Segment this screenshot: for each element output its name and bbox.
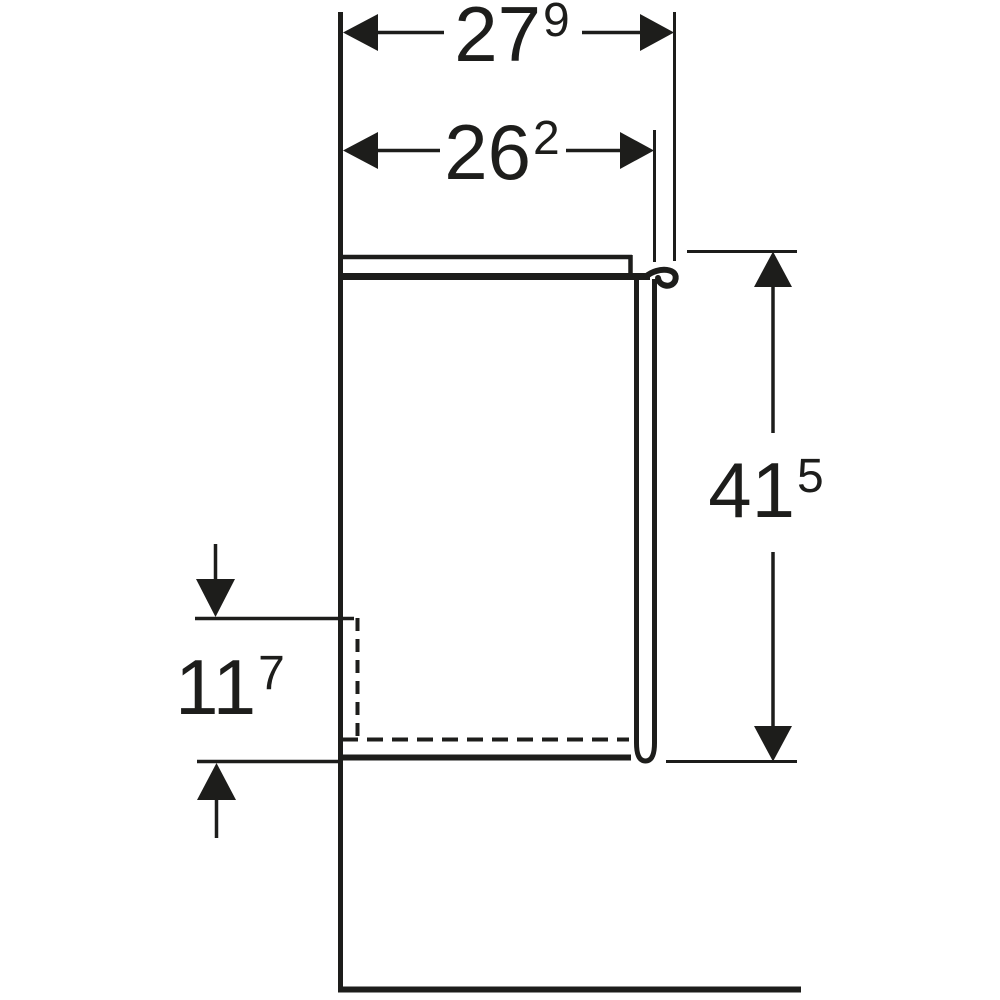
- handle-curl: [646, 270, 676, 286]
- arrow-down-icon: [754, 726, 792, 762]
- arrow-down-icon: [196, 579, 235, 617]
- dimension-superscript: 2: [533, 112, 560, 165]
- dimension-label-right-height: 415: [708, 451, 823, 529]
- arrow-right-icon: [620, 132, 654, 169]
- dimension-value: 11: [175, 643, 256, 731]
- dimension-value: 27: [454, 0, 541, 78]
- arrow-right-icon: [640, 14, 674, 51]
- dimension-label-left-cutout: 117: [175, 648, 285, 726]
- door-panel: [637, 279, 655, 761]
- dimension-value: 41: [708, 446, 795, 534]
- technical-drawing-page: 279 262 415 117: [0, 0, 1000, 1000]
- dimension-superscript: 7: [258, 647, 285, 700]
- arrow-up-icon: [754, 252, 792, 288]
- dimension-value: 26: [444, 108, 531, 196]
- arrow-up-icon: [197, 763, 236, 800]
- dimension-superscript: 5: [797, 450, 824, 503]
- arrow-left-icon: [343, 14, 378, 51]
- dimension-label-top-inner: 262: [444, 113, 559, 191]
- dimension-label-top-outer: 279: [454, 0, 569, 73]
- dimension-superscript: 9: [543, 0, 570, 47]
- arrow-left-icon: [343, 132, 378, 169]
